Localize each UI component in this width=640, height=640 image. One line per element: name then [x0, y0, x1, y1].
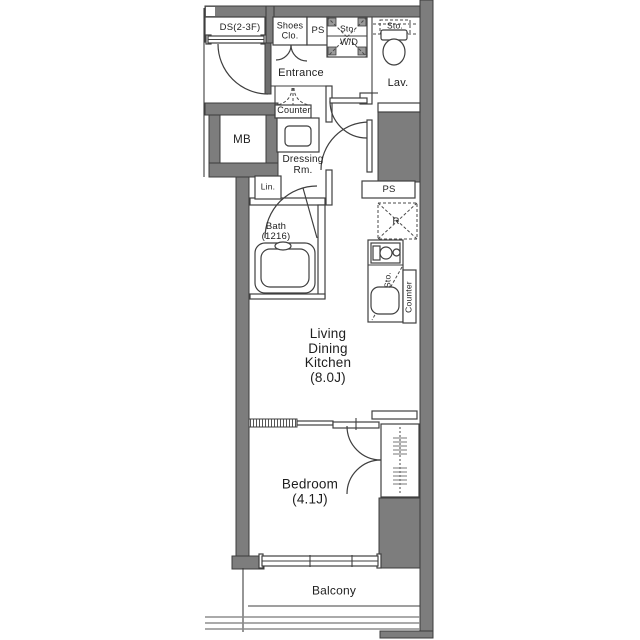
shoes-closet-label: Shoes Clo.	[277, 21, 304, 40]
counter-cabinet-arc-right	[294, 88, 311, 105]
meter-box-label: MB	[233, 134, 251, 146]
stove-burner-large	[380, 247, 392, 259]
lavatory-bottom-wall	[378, 103, 420, 112]
pipe-space-top-label: PS	[311, 26, 324, 36]
stove-burner-small	[393, 249, 400, 256]
shoes-door-arc-left	[276, 45, 291, 60]
counter-cabinet-arc-left	[275, 88, 292, 105]
wall-top	[205, 6, 421, 17]
lavatory-label: Lav.	[388, 78, 409, 90]
shoes-door-arc-right	[291, 45, 307, 61]
washer-dryer-label: W/D	[340, 38, 358, 48]
duct-space-label: DS(2-3F)	[220, 23, 261, 33]
front-door-leaf	[265, 43, 271, 94]
wall-block-bedroom-lower	[379, 498, 420, 568]
storage-above-washer-label: Sto.	[340, 24, 356, 33]
lavatory-storage-label: Sto.	[387, 21, 403, 30]
living-dining-kitchen-label: Living Dining Kitchen (8.0J)	[305, 327, 351, 385]
entrance-counter-label: Counter	[277, 106, 310, 116]
partition-pocket-panel	[249, 419, 297, 427]
bathtub-faucet	[275, 242, 291, 250]
bath-label: Bath (1216)	[262, 222, 291, 243]
kitchen-counter-label: Counter	[404, 281, 413, 313]
kitchen-sink	[371, 287, 399, 314]
hall-door-leaf	[367, 120, 372, 172]
closet-door-arc-top	[347, 426, 381, 460]
linen-label: Lin.	[261, 182, 276, 191]
wall-top-vent-notch	[206, 7, 215, 16]
wall-left	[236, 177, 249, 556]
wall-block-kitchen-upper	[378, 112, 420, 182]
dressing-right-wall-lower	[326, 170, 332, 205]
washer-corner-pad	[328, 47, 336, 55]
washer-corner-pad	[358, 47, 366, 55]
pipe-space-kitchen-label: PS	[382, 185, 395, 195]
entrance-label: Entrance	[278, 68, 324, 80]
stove-control	[373, 246, 380, 260]
wall-meterbox-left	[209, 115, 220, 163]
dressing-room-label: Dressing Rm.	[282, 155, 323, 177]
dressing-right-wall-upper	[326, 86, 332, 122]
refrigerator-label: R	[392, 217, 399, 227]
wall-meterbox-bottom	[209, 163, 278, 177]
toilet-bowl	[383, 39, 405, 65]
kitchen-storage-label: Sto.	[383, 272, 392, 288]
wall-right	[420, 0, 433, 636]
lavatory-door-arc	[330, 101, 367, 138]
front-door-arc	[218, 44, 268, 94]
floorplan-drawing	[0, 0, 640, 640]
balcony-label: Balcony	[312, 585, 356, 598]
closet-top-wall	[372, 411, 417, 419]
hall-door-arc	[321, 122, 369, 170]
closet-door-arc-bottom	[347, 460, 381, 494]
bath-door-leaf	[303, 188, 317, 238]
lavatory-door-leaf	[330, 98, 367, 103]
vanity-basin	[285, 126, 311, 146]
bathtub-inner	[261, 249, 309, 287]
floorplan: DS(2-3F) Shoes Clo. PS Sto. W/D Sto. Lav…	[0, 0, 640, 640]
wall-meterbox-right	[266, 115, 278, 163]
bedroom-label: Bedroom (4.1J)	[282, 477, 338, 506]
partition-track	[297, 421, 333, 425]
bath-right-wall	[318, 205, 325, 298]
wall-meterbox-top	[205, 103, 278, 115]
wall-balcony-cap	[380, 631, 433, 638]
bath-bottom-wall	[250, 294, 325, 299]
